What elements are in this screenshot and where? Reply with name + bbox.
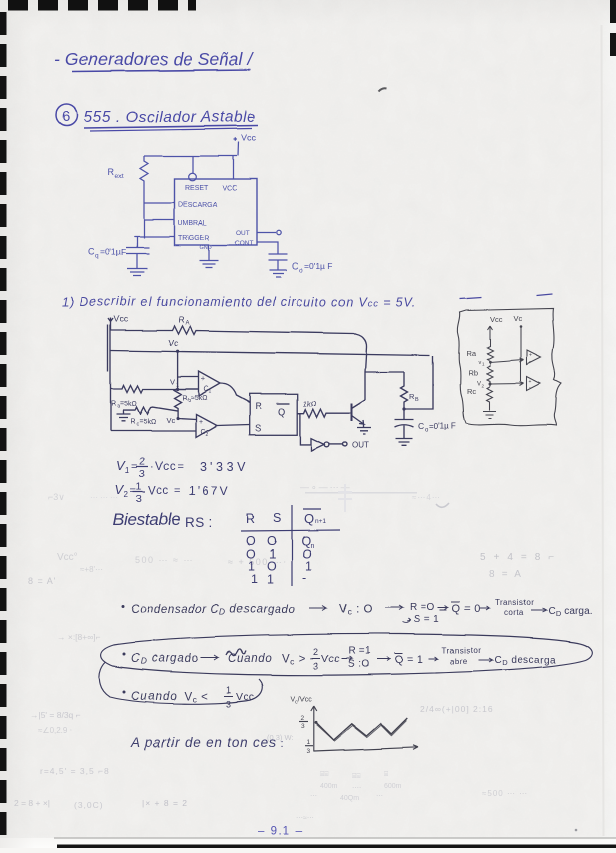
- svg-text:1: 1: [267, 572, 274, 586]
- svg-text:C: C: [292, 261, 299, 271]
- svg-text:A: A: [185, 321, 189, 327]
- svg-text:3: 3: [226, 699, 231, 709]
- svg-text:⋯⋅: ⋯⋅: [352, 785, 361, 792]
- svg-text:B: B: [415, 397, 419, 403]
- svg-text:abre: abre: [450, 657, 468, 666]
- svg-text:≈⋯4⋯: ≈⋯4⋯: [412, 493, 441, 502]
- svg-text:3'33V: 3'33V: [200, 460, 250, 474]
- svg-text:Vc: Vc: [166, 416, 175, 425]
- svg-text:Rb: Rb: [468, 368, 478, 377]
- svg-text:6: 6: [63, 108, 71, 124]
- svg-text:=0'1µ F: =0'1µ F: [429, 422, 456, 431]
- svg-text:2: 2: [139, 456, 145, 468]
- svg-text:1'67V: 1'67V: [189, 484, 230, 498]
- svg-text:⌸⌸: ⌸⌸: [352, 773, 360, 780]
- svg-text:S = 1: S = 1: [414, 614, 440, 625]
- svg-text:8 = A: 8 = A: [489, 569, 523, 580]
- svg-text:Q: Q: [304, 511, 314, 526]
- svg-text:Ra: Ra: [466, 349, 476, 358]
- svg-text:1: 1: [251, 572, 258, 586]
- svg-text:3: 3: [313, 661, 318, 671]
- svg-text:·: ·: [150, 461, 154, 473]
- svg-text:|× + 8 = 2: |× + 8 = 2: [142, 798, 188, 808]
- svg-text:+: +: [199, 419, 203, 426]
- svg-text:=: =: [177, 461, 183, 473]
- svg-text:S :O: S :O: [348, 659, 370, 670]
- svg-text:1) Describir el funcionamiento: 1) Describir el funcionamiento del circu…: [62, 295, 416, 309]
- svg-text:RS :: RS :: [185, 515, 213, 530]
- svg-text:1: 1: [248, 559, 255, 573]
- svg-text:⋯: ⋯: [310, 793, 317, 800]
- svg-text:→|5' = 8/3q ⌐: →|5' = 8/3q ⌐: [30, 710, 81, 720]
- svg-text:CD carga.: CD carga.: [548, 606, 592, 618]
- svg-text:⌸⌸: ⌸⌸: [320, 771, 328, 778]
- svg-text:2 = 8 + ×|: 2 = 8 + ×|: [14, 798, 50, 808]
- svg-text:Cuando: Cuando: [131, 691, 177, 703]
- svg-text:≈ + 500 ⋯⋅: ≈ + 500 ⋯⋅: [228, 557, 288, 567]
- svg-text:400m: 400m: [320, 783, 338, 790]
- svg-text:Vcc: Vcc: [155, 461, 176, 473]
- svg-text:+: +: [202, 376, 206, 383]
- svg-text:UMBRAL: UMBRAL: [178, 220, 207, 227]
- svg-text:Q = 0: Q = 0: [452, 603, 481, 615]
- svg-text:CONT: CONT: [235, 240, 253, 247]
- svg-text:o: o: [299, 267, 303, 274]
- svg-text:8 = A': 8 = A': [28, 576, 57, 586]
- svg-text:=0'1µF: =0'1µF: [100, 247, 126, 257]
- svg-text:Vcc: Vcc: [236, 691, 255, 703]
- svg-text:Transistor: Transistor: [495, 598, 534, 607]
- svg-text:≈+8'⋯: ≈+8'⋯: [80, 565, 103, 574]
- svg-text:R: R: [111, 401, 116, 408]
- svg-text:1kΩ: 1kΩ: [303, 399, 317, 408]
- svg-text:2: 2: [124, 490, 129, 499]
- svg-text:ext: ext: [115, 173, 124, 180]
- svg-text:Vcc°: Vcc°: [57, 552, 78, 563]
- svg-text:=0'1µ F: =0'1µ F: [304, 261, 333, 271]
- svg-text:R: R: [178, 315, 184, 325]
- svg-text:40Qm: 40Qm: [340, 795, 359, 802]
- svg-text:555 . Oscilador Astable: 555 . Oscilador Astable: [84, 109, 256, 126]
- svg-text:corta: corta: [504, 608, 524, 617]
- svg-text:TRIGGER: TRIGGER: [178, 235, 210, 242]
- svg-text:q: q: [95, 253, 99, 260]
- svg-text:5 + 4 = 8 ⌐: 5 + 4 = 8 ⌐: [480, 552, 557, 563]
- svg-text:C: C: [418, 421, 424, 431]
- svg-text:R: R: [108, 167, 115, 177]
- svg-text:600m: 600m: [384, 783, 402, 790]
- svg-text:C: C: [88, 247, 95, 257]
- svg-text:R: R: [246, 512, 255, 526]
- svg-text:O: O: [267, 559, 277, 573]
- svg-text:3: 3: [301, 723, 305, 730]
- svg-text:OUT: OUT: [352, 441, 369, 450]
- svg-text:=5kΩ: =5kΩ: [139, 419, 156, 426]
- svg-text:3: 3: [136, 493, 142, 505]
- svg-text:GND: GND: [200, 245, 212, 251]
- svg-text:Biestable: Biestable: [113, 510, 180, 529]
- svg-text:(3,0C): (3,0C): [74, 800, 104, 810]
- svg-text:A partir de en ton ces: A partir de en ton ces: [130, 735, 276, 750]
- svg-text:VCC: VCC: [222, 185, 237, 192]
- svg-text:V: V: [477, 381, 481, 387]
- svg-text:n+1: n+1: [315, 518, 326, 525]
- svg-text:– 9.1 –: – 9.1 –: [258, 826, 304, 838]
- svg-text:500 ⋯ ≈ ⋯: 500 ⋯ ≈ ⋯: [135, 555, 194, 565]
- svg-text:R: R: [255, 401, 262, 412]
- svg-text:Cuando: Cuando: [228, 653, 272, 665]
- svg-text:2: 2: [206, 432, 209, 438]
- svg-text:1: 1: [136, 481, 142, 493]
- svg-text:1: 1: [307, 739, 311, 746]
- svg-text:Vcc: Vcc: [148, 485, 169, 497]
- svg-text:DESCARGA: DESCARGA: [178, 202, 218, 209]
- svg-text:⋯: ⋯: [376, 793, 383, 800]
- svg-text:1: 1: [226, 685, 231, 695]
- svg-text:3: 3: [307, 748, 311, 755]
- svg-text:Transistor: Transistor: [442, 646, 481, 655]
- svg-text:- Generadores de Señal /: - Generadores de Señal /: [54, 49, 255, 69]
- svg-text:⌸: ⌸: [384, 771, 388, 778]
- svg-text:Vcc: Vcc: [321, 653, 339, 665]
- svg-text:R =O: R =O: [410, 602, 435, 613]
- svg-text:≈∠0,2.9 ⋅: ≈∠0,2.9 ⋅: [38, 726, 72, 735]
- svg-text:1: 1: [125, 466, 130, 475]
- svg-text:=: =: [174, 485, 180, 497]
- svg-text:Q = 1: Q = 1: [395, 654, 424, 666]
- svg-text:r=4,5' = 3,5 ⌐8: r=4,5' = 3,5 ⌐8: [40, 766, 110, 776]
- svg-text:Vc: Vc: [514, 314, 523, 323]
- svg-text:V: V: [170, 377, 175, 386]
- svg-text:=5kΩ: =5kΩ: [120, 401, 137, 408]
- svg-text:Q: Q: [278, 407, 286, 418]
- svg-text:O: O: [267, 534, 277, 548]
- svg-text:OUT: OUT: [236, 230, 250, 237]
- svg-text:Vc: Vc: [168, 338, 179, 348]
- svg-text:2: 2: [313, 647, 318, 657]
- svg-text:Vcc: Vcc: [241, 133, 257, 143]
- svg-text:Vcc: Vcc: [114, 314, 129, 324]
- svg-text:Rc: Rc: [467, 387, 476, 396]
- svg-text:Vc : O: Vc : O: [339, 604, 372, 617]
- svg-text:⋯≈⋯: ⋯≈⋯: [296, 815, 314, 822]
- svg-text:2/4∞(+|00] 2:16: 2/4∞(+|00] 2:16: [420, 704, 494, 714]
- svg-text:⌐3∨: ⌐3∨: [48, 492, 65, 502]
- svg-text:-: -: [302, 570, 306, 584]
- svg-text:R =1: R =1: [348, 646, 371, 657]
- svg-text:O: O: [246, 534, 256, 548]
- svg-text::: :: [280, 738, 283, 750]
- svg-text:→ ×:[8+∞]⌐: → ×:[8+∞]⌐: [57, 632, 101, 642]
- svg-text:S: S: [273, 511, 281, 525]
- svg-text:Vcc: Vcc: [490, 315, 503, 324]
- svg-text:3: 3: [139, 468, 145, 480]
- svg-text:≈500 ⋯ ⋯: ≈500 ⋯ ⋯: [482, 789, 528, 798]
- svg-text:—∘—⋯—: —∘—⋯—: [300, 482, 352, 492]
- svg-text:1: 1: [209, 389, 212, 395]
- svg-text:R: R: [130, 419, 135, 426]
- svg-text:S: S: [255, 423, 261, 434]
- svg-text:Condensador CD descargado: Condensador CD descargado: [131, 604, 296, 617]
- svg-text:RESET: RESET: [185, 185, 209, 192]
